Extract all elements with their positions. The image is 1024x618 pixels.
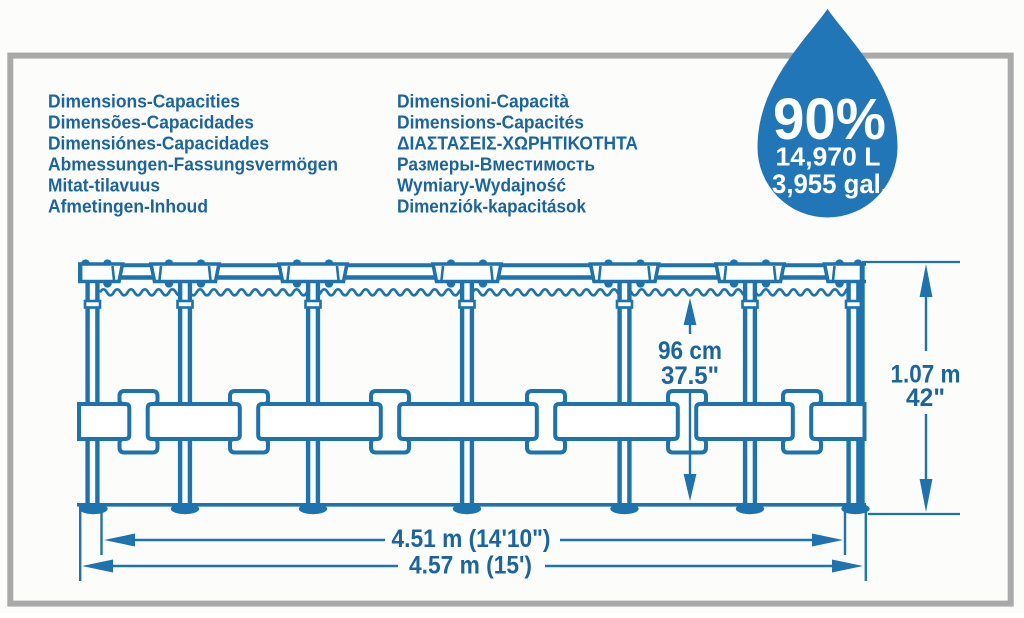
svg-text:Wymiary-Wydajność: Wymiary-Wydajność: [397, 175, 566, 196]
svg-text:42": 42": [906, 384, 945, 412]
svg-text:Abmessungen-Fassungsvermögen: Abmessungen-Fassungsvermögen: [48, 154, 338, 175]
svg-text:37.5": 37.5": [661, 362, 719, 390]
svg-text:Размеры-Вместимость: Размеры-Вместимость: [397, 154, 595, 175]
svg-text:14,970 L: 14,970 L: [776, 142, 881, 172]
svg-text:4.51 m (14'10"): 4.51 m (14'10"): [392, 525, 551, 553]
svg-text:Afmetingen-Inhoud: Afmetingen-Inhoud: [48, 196, 208, 217]
svg-text:Dimenziók-kapacitások: Dimenziók-kapacitások: [397, 196, 587, 217]
svg-text:Dimensions-Capacités: Dimensions-Capacités: [397, 112, 584, 133]
svg-text:Mitat-tilavuus: Mitat-tilavuus: [48, 175, 160, 196]
svg-text:Dimensioni-Capacità: Dimensioni-Capacità: [397, 91, 570, 112]
svg-text:96 cm: 96 cm: [658, 337, 722, 365]
svg-text:Dimensões-Capacidades: Dimensões-Capacidades: [48, 112, 254, 133]
svg-text:4.57 m (15'): 4.57 m (15'): [409, 552, 532, 580]
svg-text:Dimensions-Capacities: Dimensions-Capacities: [48, 91, 240, 112]
svg-text:ΔΙΑΣΤΑΣΕΙΣ-ΧΩΡΗΤΙΚΟΤΗΤΑ: ΔΙΑΣΤΑΣΕΙΣ-ΧΩΡΗΤΙΚΟΤΗΤΑ: [397, 133, 638, 154]
svg-text:Dimensiónes-Capacidades: Dimensiónes-Capacidades: [48, 133, 269, 154]
svg-text:3,955 gal.: 3,955 gal.: [772, 169, 888, 199]
